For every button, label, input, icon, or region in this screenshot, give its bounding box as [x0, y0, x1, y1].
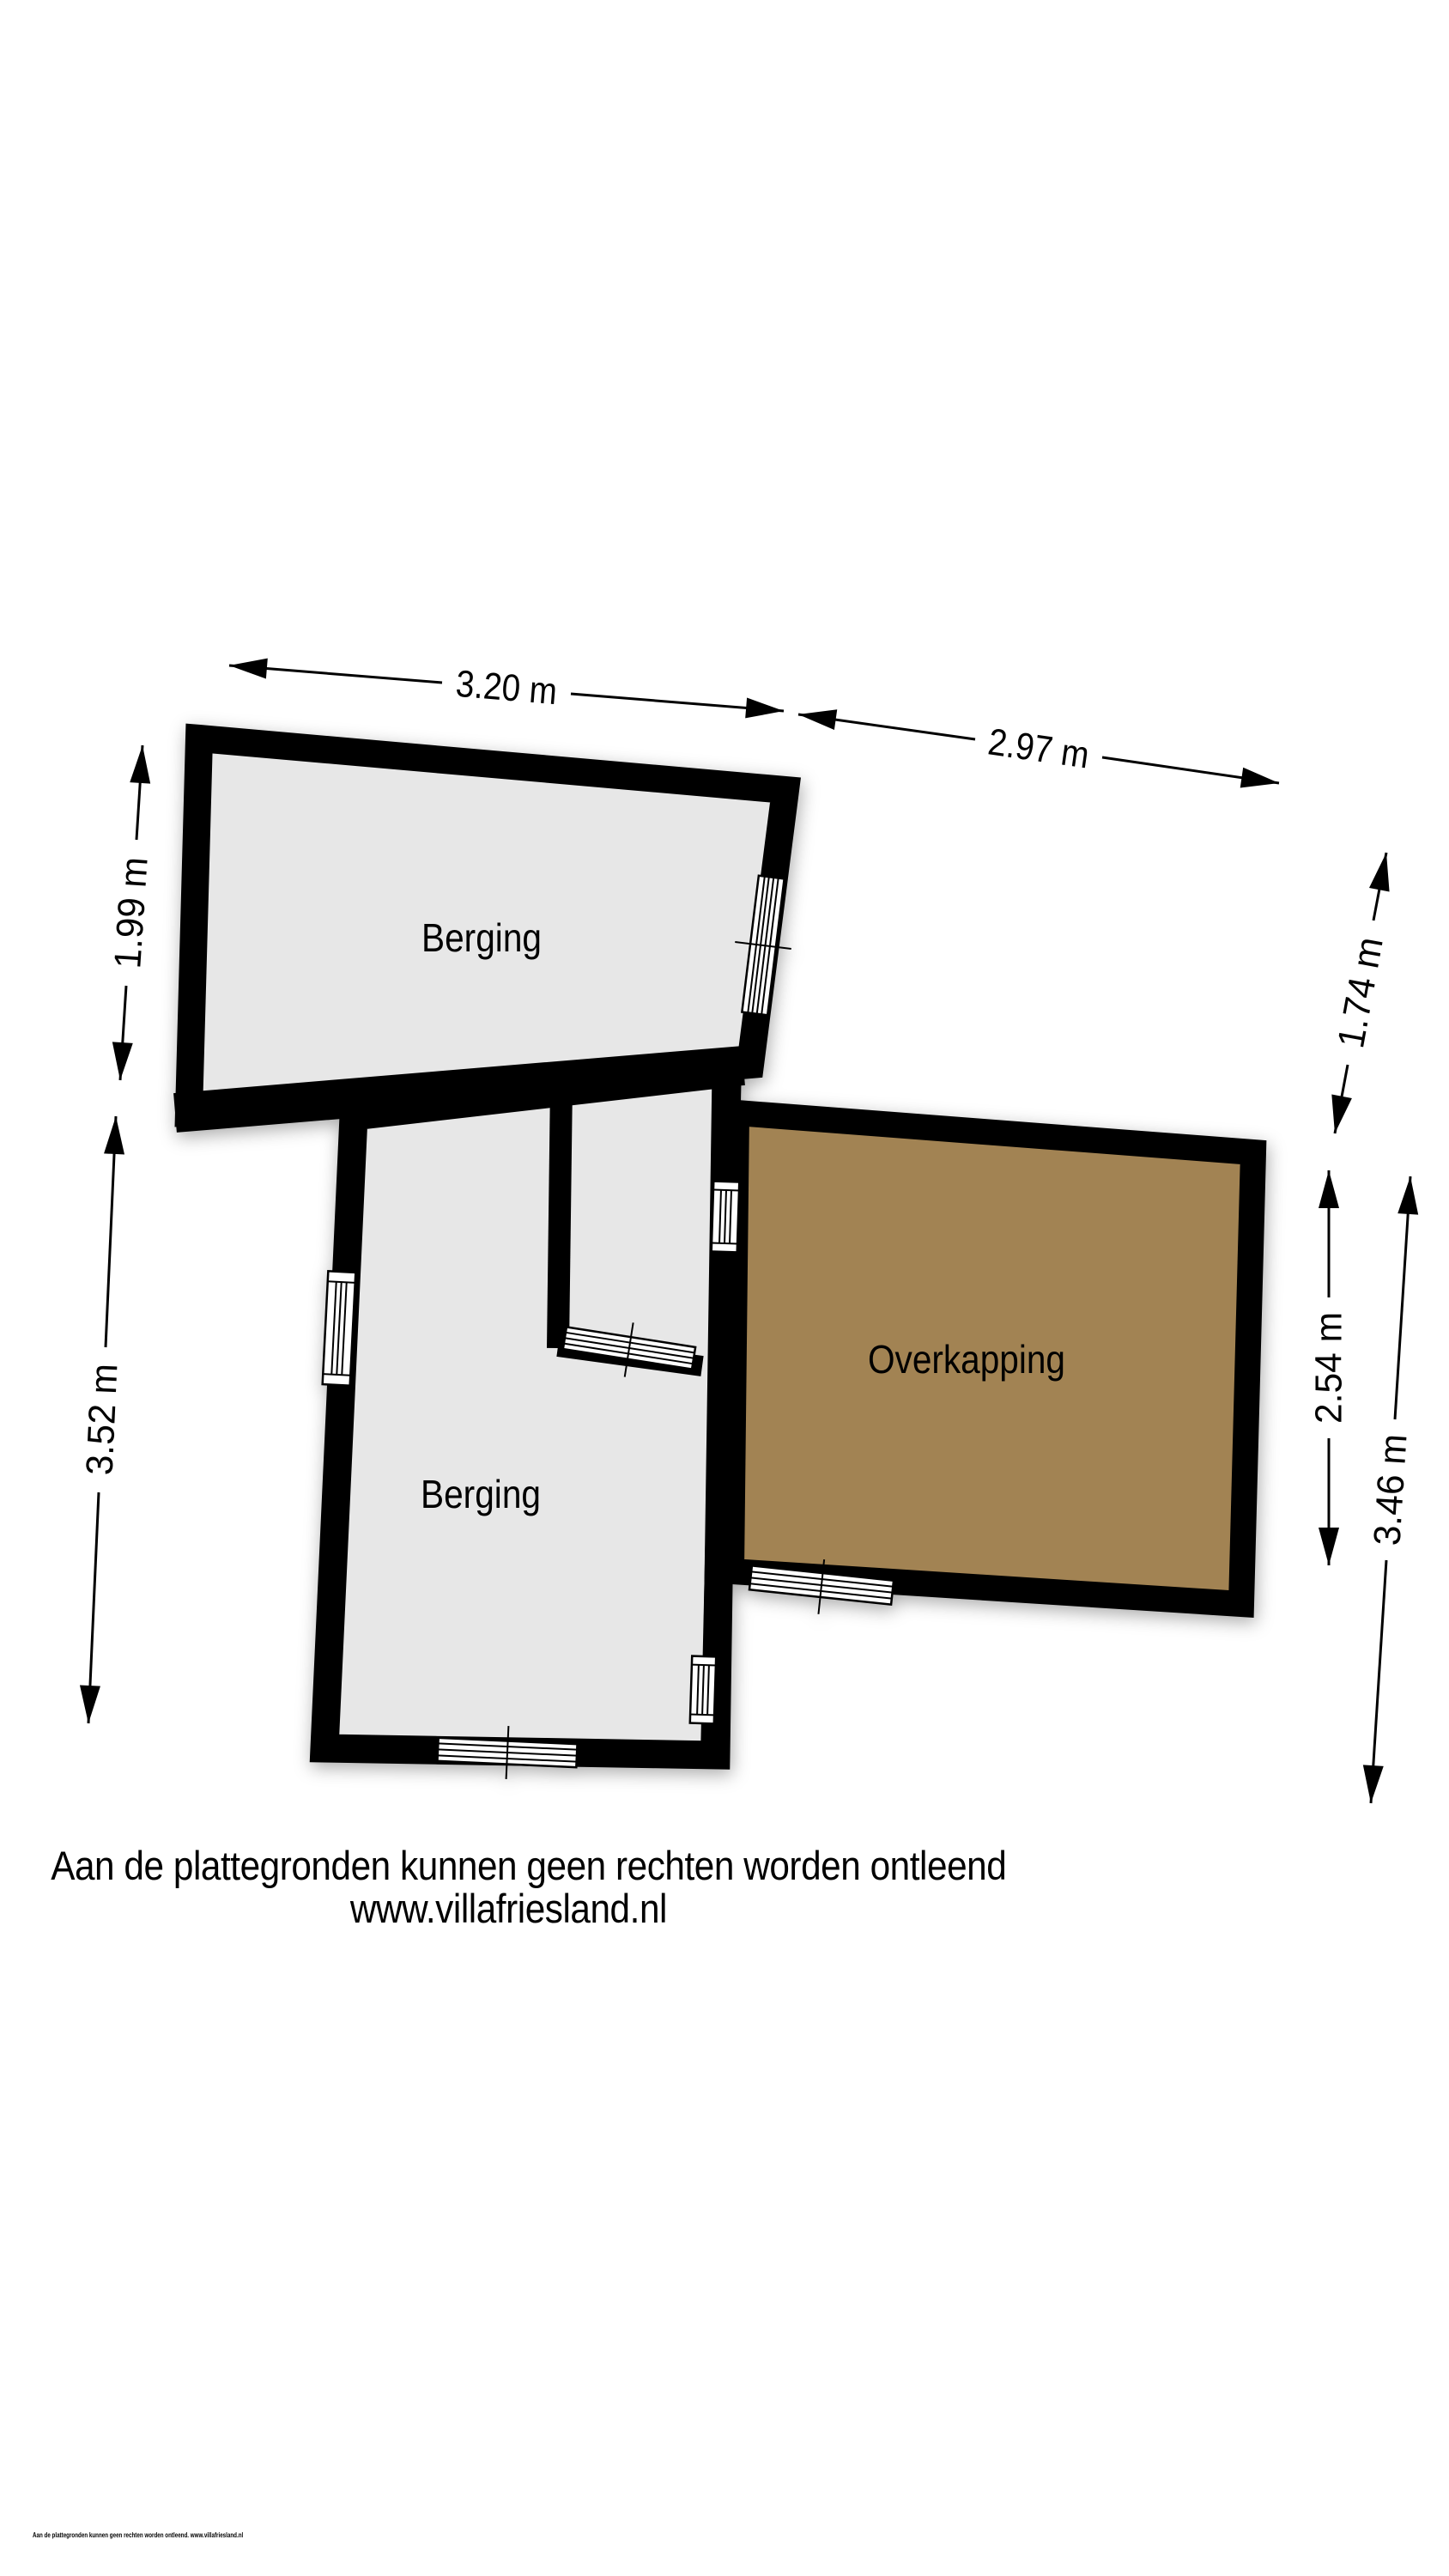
wall-interior-vertical: [558, 1084, 561, 1348]
room-label-berging-bottom: Berging: [421, 1472, 541, 1516]
dimension-arrow: [1395, 1176, 1410, 1419]
dimension-arrow: [1371, 1560, 1386, 1803]
dimension-label: 3.52 m: [79, 1363, 126, 1476]
dimension-arrow: [1102, 757, 1279, 783]
dimension-arrow: [88, 1492, 99, 1723]
dimension-arrow: [798, 714, 975, 739]
dimension-left-height-lower: 3.52 m: [79, 1116, 126, 1723]
dimension-arrow: [1335, 1065, 1348, 1133]
dimension-top-width-left: 3.20 m: [229, 663, 784, 714]
wall-divider: [713, 1063, 729, 1757]
building-group: [175, 738, 1253, 1783]
dimension-arrow: [136, 745, 142, 840]
window-divider-lower: [690, 1656, 716, 1724]
dimension-label: 2.97 m: [985, 720, 1092, 776]
dimension-arrow: [1373, 853, 1386, 920]
dimension-arrow: [571, 694, 784, 711]
room-label-berging-top: Berging: [421, 915, 542, 960]
room-label-overkapping: Overkapping: [868, 1337, 1065, 1382]
dimension-label: 2.54 m: [1308, 1312, 1350, 1424]
disclaimer-text: Aan de plattegronden kunnen geen rechten…: [51, 1844, 967, 1887]
footer-disclaimer-block: Aan de plattegronden kunnen geen rechten…: [51, 1844, 967, 1930]
dimension-label: 3.20 m: [454, 663, 559, 714]
dimension-right-height-inner: 2.54 m: [1308, 1170, 1350, 1565]
dimension-arrow: [106, 1116, 116, 1347]
room-berging-bottom: [324, 1073, 726, 1755]
dimension-top-width-right: 2.97 m: [798, 714, 1279, 783]
fine-print-text: Aan de plattegronden kunnen geen rechten…: [33, 2531, 243, 2539]
dimension-label: 1.99 m: [106, 856, 156, 970]
dimension-arrow: [229, 665, 442, 683]
dimension-right-height-outer: 3.46 m: [1366, 1176, 1415, 1803]
dimension-label: 3.46 m: [1366, 1433, 1415, 1547]
dimension-arrow: [120, 986, 126, 1080]
window-berging-left: [323, 1271, 356, 1385]
dimension-label: 1.74 m: [1330, 934, 1391, 1052]
dimension-left-height-upper: 1.99 m: [106, 745, 156, 1080]
window-divider-middle: [712, 1182, 740, 1253]
dimension-right-height-upper: 1.74 m: [1330, 853, 1391, 1133]
website-text: www.villafriesland.nl: [51, 1887, 967, 1930]
floor-plan-svg: Berging Berging Overkapping 3.20 m 2.97 …: [0, 0, 1449, 2576]
